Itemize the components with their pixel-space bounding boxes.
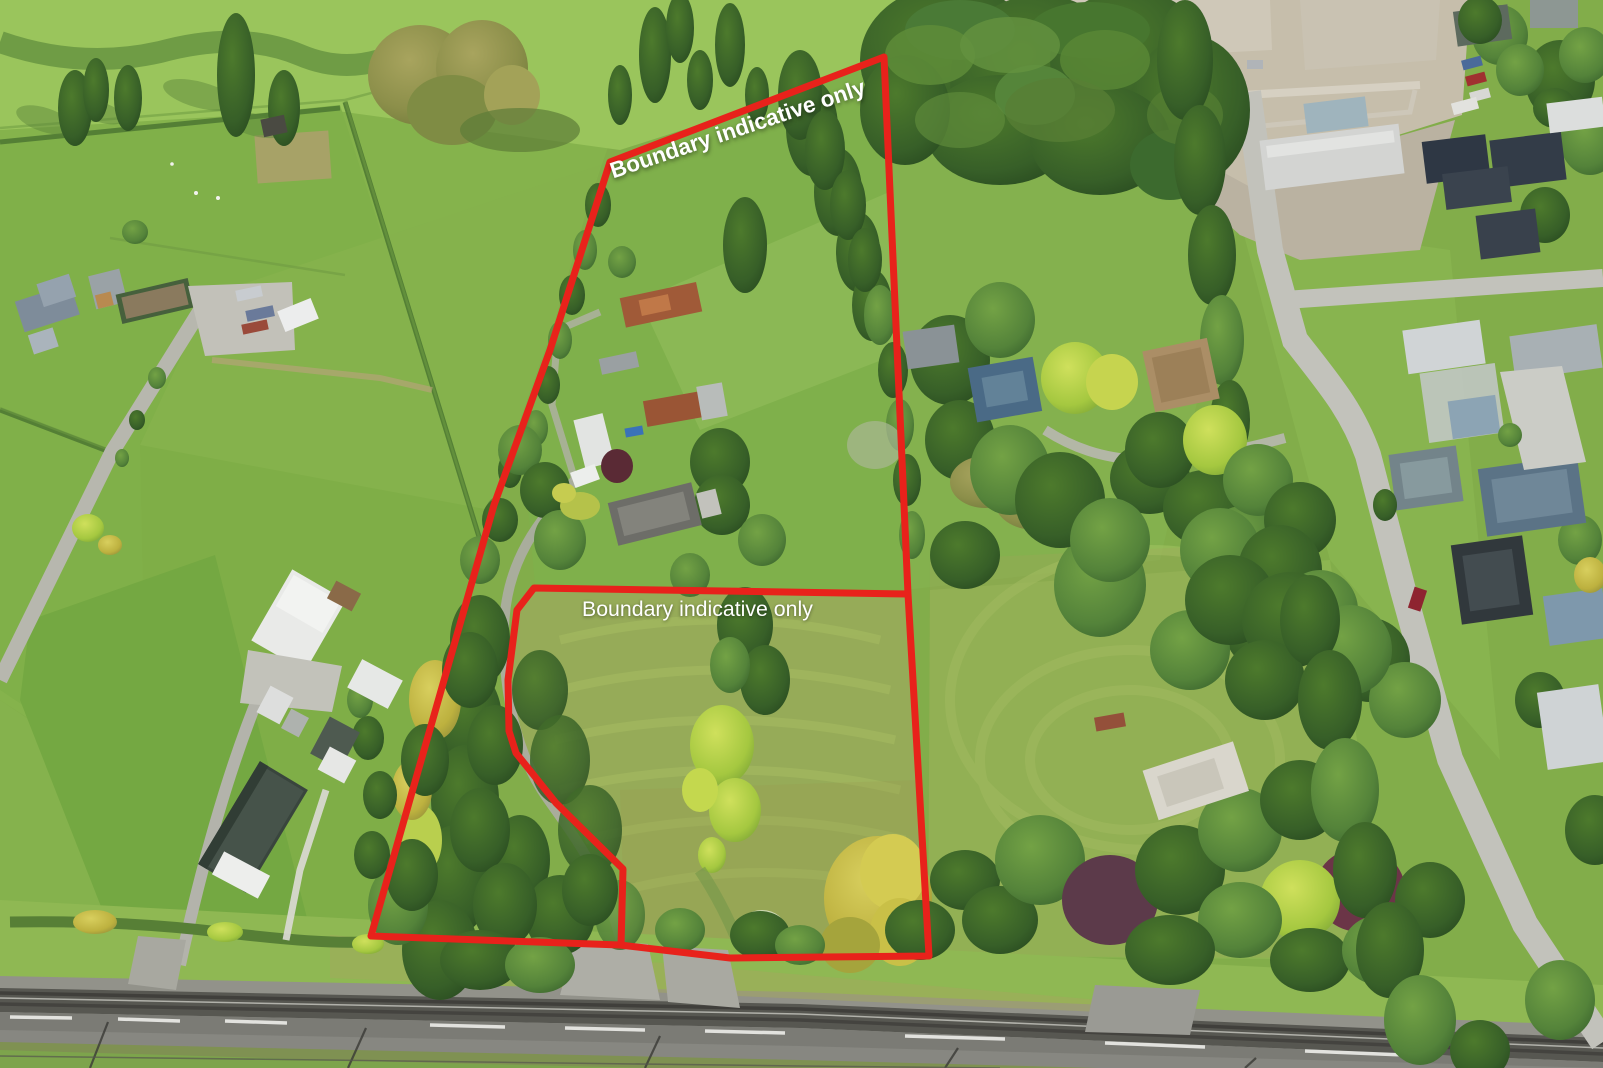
svg-text:Boundary indicative only: Boundary indicative only (582, 597, 813, 621)
